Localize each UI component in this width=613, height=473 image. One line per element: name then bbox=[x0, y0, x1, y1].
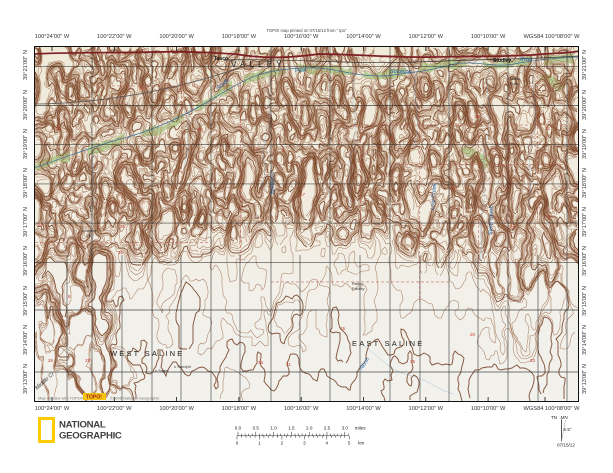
svg-text:Solomon: Solomon bbox=[390, 69, 412, 75]
svg-text:TOPO!: TOPO! bbox=[86, 395, 102, 401]
svg-text:2.0: 2.0 bbox=[306, 426, 313, 431]
svg-text:TN: TN bbox=[551, 415, 557, 420]
svg-text:31: 31 bbox=[56, 126, 62, 131]
svg-text:26: 26 bbox=[38, 222, 44, 227]
svg-text:MN: MN bbox=[561, 415, 569, 420]
svg-text:35: 35 bbox=[410, 359, 416, 364]
svg-text:Flats: Flats bbox=[510, 81, 519, 86]
svg-text:36: 36 bbox=[510, 224, 516, 229]
svg-text:x Sagel: x Sagel bbox=[155, 368, 168, 373]
svg-text:33: 33 bbox=[530, 358, 536, 363]
svg-text:12: 12 bbox=[545, 126, 551, 131]
svg-text:35: 35 bbox=[475, 114, 481, 119]
svg-text:Facility: Facility bbox=[352, 286, 364, 291]
svg-text:17: 17 bbox=[300, 192, 306, 197]
svg-text:Spring Cr: Spring Cr bbox=[270, 171, 276, 195]
svg-text:28: 28 bbox=[388, 136, 394, 141]
svg-text:1.5: 1.5 bbox=[288, 426, 295, 431]
svg-text:25: 25 bbox=[85, 358, 91, 363]
svg-text:1: 1 bbox=[258, 440, 261, 445]
svg-text:Ch: Ch bbox=[86, 233, 91, 238]
svg-text:miles: miles bbox=[355, 426, 366, 431]
svg-text:3: 3 bbox=[303, 440, 306, 445]
svg-text:©2006 National Geographic: ©2006 National Geographic bbox=[110, 396, 159, 401]
svg-text:15: 15 bbox=[340, 326, 346, 331]
svg-text:20: 20 bbox=[470, 332, 476, 337]
svg-text:24: 24 bbox=[198, 127, 204, 132]
svg-text:WEST SALINE: WEST SALINE bbox=[110, 349, 185, 358]
svg-text:36: 36 bbox=[258, 360, 264, 365]
svg-text:2.5: 2.5 bbox=[324, 426, 331, 431]
svg-text:NATIONAL: NATIONAL bbox=[59, 420, 106, 431]
svg-text:26: 26 bbox=[48, 358, 54, 363]
svg-text:0: 0 bbox=[236, 440, 239, 445]
svg-text:Sand Creek: Sand Creek bbox=[488, 206, 495, 235]
svg-text:River: River bbox=[520, 57, 534, 63]
svg-text:Map created with TOPO!®: Map created with TOPO!® bbox=[38, 396, 85, 401]
svg-text:Tasco: Tasco bbox=[214, 56, 228, 62]
svg-text:0.5: 0.5 bbox=[253, 426, 260, 431]
svg-text:Studley: Studley bbox=[493, 58, 511, 64]
svg-text:3.0: 3.0 bbox=[342, 426, 349, 431]
svg-text:VALLEY: VALLEY bbox=[231, 60, 286, 69]
svg-text:5: 5 bbox=[348, 440, 351, 445]
svg-text:1.0: 1.0 bbox=[270, 426, 277, 431]
svg-text:2: 2 bbox=[281, 440, 284, 445]
svg-text:31: 31 bbox=[286, 362, 292, 367]
svg-text:EAST SALINE: EAST SALINE bbox=[352, 339, 424, 348]
svg-text:22: 22 bbox=[118, 250, 124, 255]
svg-text:14: 14 bbox=[450, 186, 456, 191]
svg-text:x Sandpit: x Sandpit bbox=[174, 364, 192, 369]
svg-text:Fork: Fork bbox=[295, 68, 306, 74]
svg-text:07/15/12: 07/15/12 bbox=[557, 443, 575, 448]
svg-text:6.5°: 6.5° bbox=[564, 427, 572, 432]
svg-text:km: km bbox=[358, 440, 364, 445]
svg-text:4: 4 bbox=[326, 440, 329, 445]
svg-text:GEOGRAPHIC: GEOGRAPHIC bbox=[59, 431, 122, 442]
svg-text:30: 30 bbox=[120, 224, 126, 229]
svg-text:0.0: 0.0 bbox=[235, 426, 242, 431]
